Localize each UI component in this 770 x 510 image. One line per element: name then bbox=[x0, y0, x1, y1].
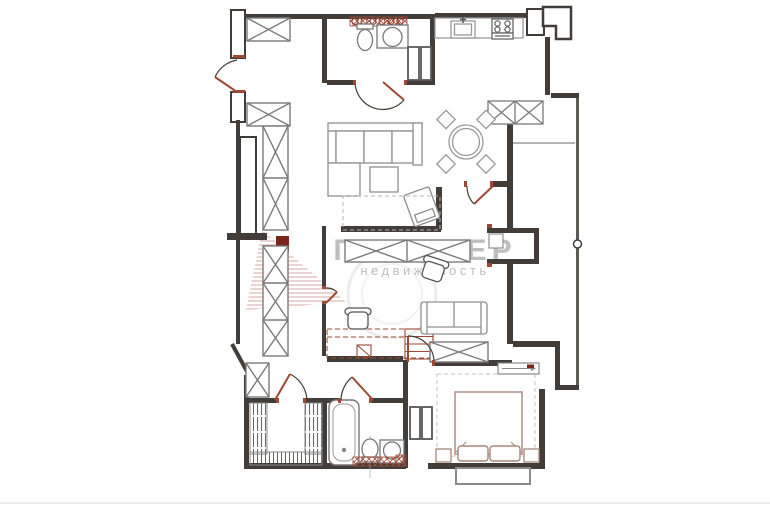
bathroom-top-door-leaf bbox=[383, 82, 404, 100]
closet-rail-left bbox=[250, 403, 267, 454]
bath-cabinet-1 bbox=[408, 47, 419, 80]
washing-unit bbox=[396, 455, 406, 466]
living-room bbox=[328, 110, 495, 230]
entry-door-arc bbox=[215, 60, 237, 77]
kitchen-wardrobe bbox=[488, 101, 543, 124]
coffee-table bbox=[370, 167, 398, 192]
floor-plan-page: ПРЕМЬЕР недвижимость bbox=[0, 0, 770, 510]
dining-set bbox=[437, 110, 495, 173]
study-wardrobe-long bbox=[345, 240, 470, 262]
bathroom-bottom-door-leaf bbox=[352, 377, 373, 400]
double-bed bbox=[455, 392, 522, 461]
window-handle bbox=[574, 240, 582, 248]
corridor-wardrobe-upper bbox=[263, 126, 288, 230]
stove-icon bbox=[492, 19, 513, 39]
dining-chair bbox=[477, 155, 495, 173]
nightstand-right bbox=[524, 449, 539, 462]
entry-door-leaf bbox=[215, 77, 237, 92]
photo-edge bbox=[0, 502, 770, 504]
study-wardrobe-se bbox=[430, 342, 488, 362]
closet-door-leaf bbox=[275, 374, 290, 400]
toilet-icon bbox=[357, 24, 373, 51]
bedroom-shelf-rail bbox=[498, 363, 539, 374]
bedroom-cabinet-2 bbox=[422, 407, 432, 439]
armchair bbox=[403, 187, 440, 227]
pillow bbox=[490, 446, 520, 461]
dining-chair bbox=[437, 110, 455, 128]
floor-plan-drawing: ПРЕМЬЕР недвижимость bbox=[0, 0, 770, 510]
bay-window bbox=[456, 468, 530, 484]
office-chair-desk bbox=[345, 308, 371, 329]
closet-door-arc bbox=[290, 374, 307, 400]
dining-chair bbox=[437, 155, 455, 173]
bathroom-top bbox=[350, 17, 431, 80]
hall-wardrobe-lower bbox=[247, 103, 290, 126]
bathroom-bottom-door-arc bbox=[341, 377, 352, 400]
bathroom-top-door-arc bbox=[355, 82, 404, 109]
study-sofa bbox=[421, 302, 487, 334]
bath-hatch-strip bbox=[353, 457, 403, 466]
closet-rail-right bbox=[305, 403, 322, 454]
corridor-wardrobe-lower bbox=[263, 246, 288, 356]
living-study-door-arc bbox=[467, 186, 474, 204]
corridor-cabinet bbox=[246, 363, 269, 397]
hall-wardrobe-top bbox=[247, 18, 290, 41]
nightstand-left bbox=[436, 449, 451, 462]
bedroom-cabinet-1 bbox=[410, 407, 420, 439]
bathtub-icon bbox=[329, 400, 359, 465]
pillow bbox=[458, 446, 488, 461]
study-desk bbox=[327, 329, 433, 359]
living-study-door-leaf bbox=[474, 186, 493, 204]
closet-rail-bottom bbox=[250, 452, 322, 465]
bath-cabinet-2 bbox=[421, 47, 431, 80]
kitchen-sink-icon bbox=[451, 17, 475, 38]
walk-in-closet bbox=[250, 403, 322, 465]
duct-shaft bbox=[240, 137, 256, 235]
